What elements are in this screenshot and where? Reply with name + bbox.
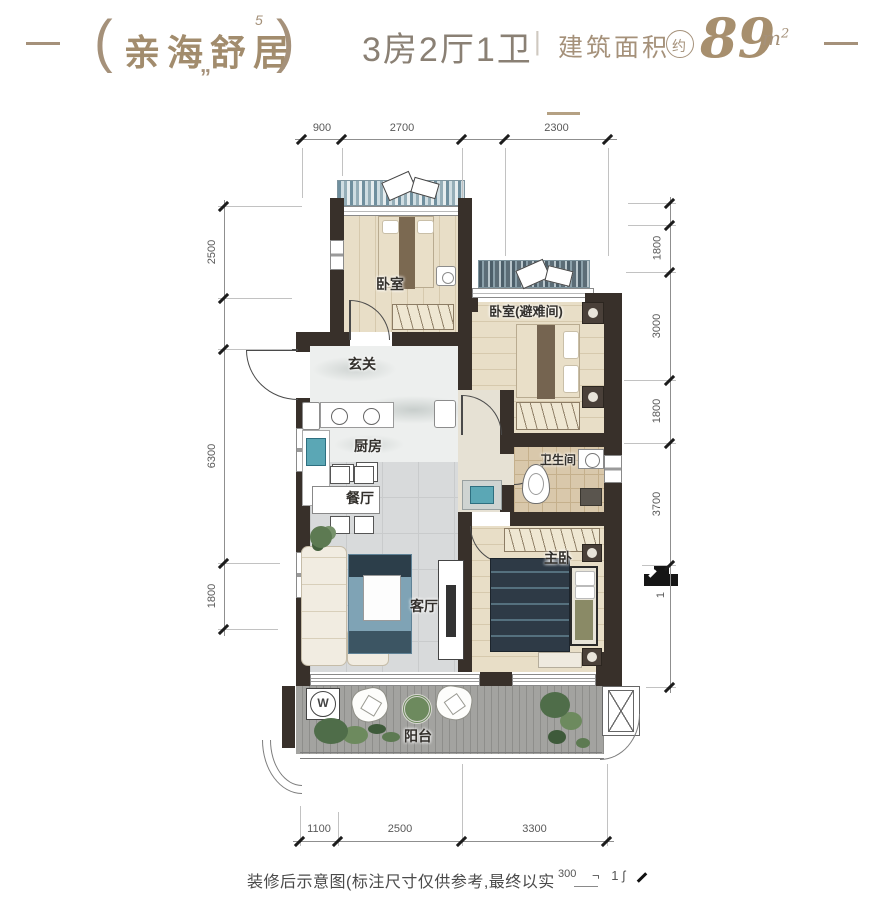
master-bench (538, 652, 582, 668)
ext (302, 148, 303, 198)
wall-bedroom1-left (330, 198, 344, 346)
area-approx-circle: 约 (666, 30, 694, 58)
ext (218, 629, 278, 630)
crib-pillow (575, 571, 595, 586)
rug-dark-band-bottom (349, 631, 411, 653)
wall-master-top-left (458, 512, 472, 526)
bathroom-window (604, 455, 622, 483)
wall-bottom-left-stub (296, 672, 310, 686)
area-approx-text: 约 (672, 36, 686, 56)
header-separator: | (534, 26, 541, 57)
dim-top-2700: 2700 (342, 121, 462, 135)
tv-screen (446, 585, 456, 637)
ext (342, 148, 343, 176)
header-dash-left (26, 42, 60, 45)
ext (505, 148, 506, 256)
dim-left-1800: 1800 (205, 563, 219, 629)
toilet-seat (528, 473, 544, 495)
header-dash-right (824, 42, 858, 45)
wall-right-main (604, 293, 622, 680)
room-label-master: 主卧 (538, 550, 578, 566)
balcony-curve-right-outer (600, 714, 640, 760)
ext (218, 298, 292, 299)
crib-blanket (575, 600, 593, 640)
balcony-slider-right (512, 674, 596, 686)
area-unit-base: m (762, 26, 781, 50)
layout-info: 3房2厅1卫 (362, 22, 533, 71)
washer-box: W (306, 688, 340, 720)
bedroom1-side-window (330, 240, 344, 270)
room-label-bedroom1: 卧室 (368, 276, 412, 292)
lamp-icon (442, 272, 454, 284)
niche-basin (470, 486, 494, 504)
dimline-left (224, 200, 225, 636)
dim-top-900: 900 (302, 121, 342, 135)
dim-top-2300: 2300 (505, 121, 608, 135)
room-label-living: 客厅 (402, 598, 446, 614)
wall-bedroom1-right (458, 198, 472, 390)
wall-left-above-door (296, 332, 310, 352)
master-nightstand-top (582, 544, 602, 562)
room-label-balcony: 阳台 (396, 728, 440, 744)
room-label-bathroom: 卫生间 (530, 452, 586, 468)
room-label-bedroom2: 卧室(避难间) (476, 304, 576, 320)
room-label-kitchen: 厨房 (346, 438, 390, 454)
stove-burner (363, 408, 380, 425)
area-unit-sup: 2 (781, 26, 789, 41)
ext (218, 349, 292, 350)
kitchen-fridge (302, 402, 320, 430)
ext (607, 764, 608, 846)
bedroom2-door-leaf (461, 395, 463, 435)
entry-cabinet (434, 400, 456, 428)
area-label: 建筑面积 (558, 28, 670, 64)
footer-frag-dim: 300 (558, 868, 576, 880)
bedroom2-window-sill (472, 288, 594, 298)
ext (608, 148, 609, 256)
bed-pillow (417, 220, 434, 234)
title-bracket-left: ( (94, 6, 113, 74)
dim-bottom-3300: 3300 (462, 822, 607, 836)
dim-right-3000: 3000 (650, 276, 664, 376)
bedroom2-bed (516, 324, 580, 398)
balcony-plant-pot (402, 694, 432, 724)
wall-bay2-connector (458, 298, 478, 312)
stove-burner (331, 408, 348, 425)
dim-left-2500: 2500 (205, 206, 219, 298)
wall-balcony-left (282, 686, 295, 748)
balcony-plants-right (540, 692, 570, 718)
bed-pillow (382, 220, 399, 234)
master-crib (570, 566, 598, 646)
area-unit: m2 (762, 26, 789, 50)
dining-chair (330, 516, 350, 534)
wall-bath-left-top (500, 447, 514, 454)
ext (218, 206, 302, 207)
master-nightstand-bottom (582, 648, 602, 666)
bedroom2-nightstand-top (582, 302, 604, 324)
kitchen-sink (306, 438, 326, 466)
bedroom1-window-sill (337, 206, 465, 216)
wall-master-top-right (510, 512, 604, 526)
ext (218, 563, 280, 564)
room-label-entry: 玄关 (340, 356, 384, 372)
title-deco-quotes: „ (200, 52, 211, 78)
balcony-slider-left (310, 674, 480, 686)
dim-right-3700: 3700 (650, 449, 664, 559)
bedroom1-wardrobe (392, 304, 454, 330)
balcony-bottom-line-1 (300, 752, 602, 753)
dim-bottom-2500: 2500 (338, 822, 462, 836)
dimline-bottom (293, 841, 614, 842)
footer-frag-marks: ¬ 1ʃ (592, 868, 629, 883)
dim-right-1800a: 1800 (651, 225, 665, 272)
dim-right-small: 1 (654, 588, 668, 602)
footer-frag-line (574, 886, 598, 887)
wall-bedroom2-bottom (512, 433, 604, 447)
bath-washer-cabinet (580, 488, 602, 506)
ext (462, 148, 463, 198)
entry-door-arc (246, 350, 298, 400)
rug-art-panel (363, 575, 401, 621)
wall-bedroom1-bottom-b (392, 332, 472, 346)
header-underline-fragment (547, 112, 580, 115)
living-sofa (301, 546, 347, 666)
rug-dark-band (349, 555, 411, 577)
washer-drum-icon: W (310, 691, 336, 717)
bedroom1-door-leaf (349, 300, 351, 340)
room-label-dining: 餐厅 (338, 490, 382, 506)
vanity-basin (585, 453, 600, 468)
dining-chair (330, 466, 350, 484)
wall-bottom-center (480, 672, 512, 686)
header: ( 亲海舒居 „ 5 ) 3房2厅1卫 | 建筑面积 约 89 m2 (0, 0, 888, 100)
dining-chair (354, 516, 374, 534)
balcony-plants-left (314, 718, 348, 744)
dim-bottom-1100: 1100 (300, 822, 338, 836)
bed-runner (537, 325, 555, 399)
title-deco-flag: 5 (255, 12, 263, 28)
bedroom1-nightstand (436, 266, 456, 286)
footer-frag-tick (637, 872, 648, 883)
wall-bath-left-bottom (500, 485, 514, 512)
kitchen-counter-top (320, 402, 394, 428)
dim-right-1800b: 1800 (650, 381, 664, 441)
dining-chair (354, 466, 374, 484)
bed-pillow (563, 365, 579, 393)
crib-pillow (575, 586, 595, 599)
master-bed (490, 558, 570, 652)
balcony-bottom-line-2 (300, 758, 604, 759)
bed-pillow (563, 331, 579, 359)
dim-left-6300: 6300 (205, 396, 219, 516)
bedroom2-wardrobe (516, 402, 580, 430)
footer-note: 装修后示意图(标注尺寸仅供参考,最终以实 (247, 868, 555, 892)
bedroom2-nightstand-bottom (582, 386, 604, 408)
floorplan-page: ( 亲海舒居 „ 5 ) 3房2厅1卫 | 建筑面积 约 89 m2 (0, 0, 888, 900)
living-plant (310, 526, 332, 548)
title-bracket-right: ) (276, 6, 295, 74)
